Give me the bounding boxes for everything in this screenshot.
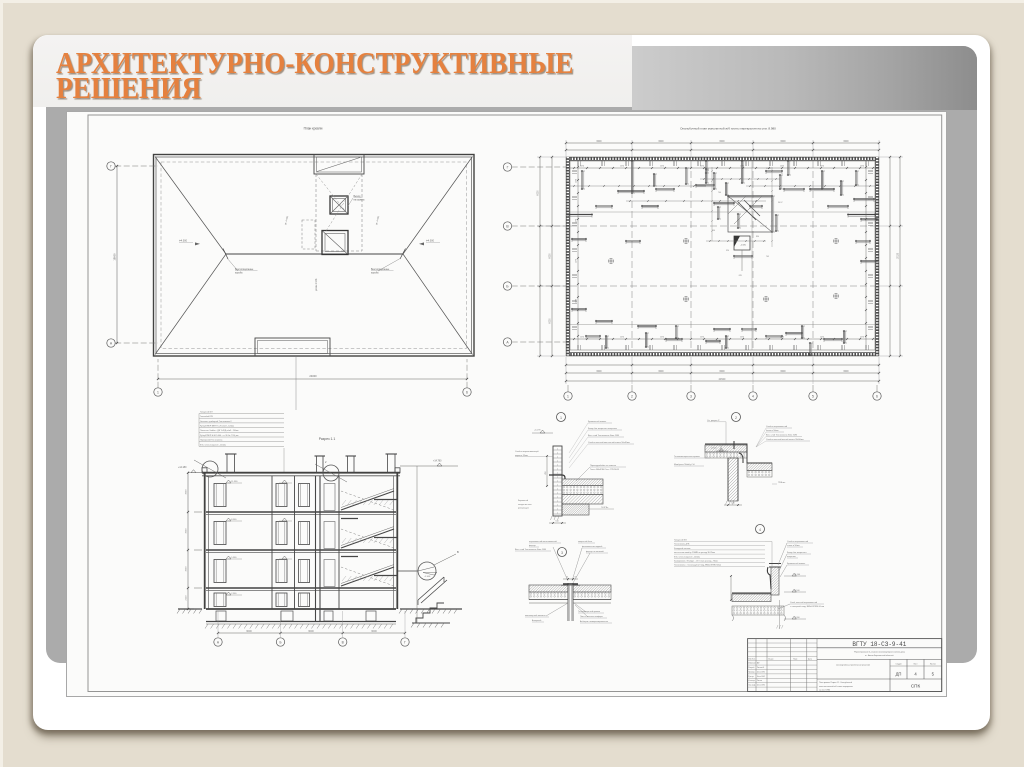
svg-text:АФ: АФ (757, 662, 760, 665)
svg-text:План кровли. Разрез 1.1. Опалу: План кровли. Разрез 1.1. Опалубочный (819, 681, 852, 684)
svg-text:А: А (217, 641, 220, 645)
svg-text:Зав.каф.: Зав.каф. (748, 684, 756, 687)
svg-text:6: 6 (876, 395, 878, 399)
svg-text:Рук.пр.: Рук.пр. (748, 676, 754, 678)
svg-text:1570: 1570 (660, 337, 664, 339)
svg-text:6000: 6000 (246, 630, 252, 633)
svg-text:450: 450 (545, 470, 547, 474)
svg-text:Теплозащитный кромка: Теплозащитный кромка (578, 610, 601, 613)
svg-text:Холодный натолок: Холодный натолок (674, 547, 691, 550)
svg-text:6000: 6000 (843, 371, 849, 373)
svg-text:швеллерный замыкал: швеллерный замыкал (525, 614, 546, 617)
svg-text:705: 705 (766, 256, 769, 258)
svg-text:№ док.: № док. (768, 657, 774, 660)
svg-text:2120: 2120 (186, 595, 188, 601)
svg-text:6000: 6000 (780, 371, 786, 373)
svg-text:Слой из выравнивающей: Слой из выравнивающей (515, 450, 539, 453)
svg-text:Лисов: Лисов (757, 680, 762, 682)
svg-text:1570: 1570 (780, 166, 784, 168)
svg-text:3000: 3000 (186, 528, 188, 534)
svg-text:ук. i=4%: ук. i=4% (284, 215, 289, 225)
svg-text:на кровлю: на кровлю (354, 199, 365, 201)
svg-text:А: А (110, 342, 113, 346)
svg-text:короба: короба (371, 273, 379, 275)
svg-text:3: 3 (690, 395, 692, 399)
svg-text:Опалубочный план монолитной ж/: Опалубочный план монолитной ж/б плиты пе… (680, 127, 776, 131)
svg-text:Чесн.В.Ю: Чесн.В.Ю (757, 676, 765, 678)
svg-text:РуберПЛЮР Н-30 9.000 - ст. 30: РуберПЛЮР Н-30 9.000 - ст. 30 Эк. ТОЦ мм (200, 435, 239, 437)
svg-text:Анкерный: Анкерный (532, 619, 541, 622)
svg-text:План кровли: План кровли (304, 127, 323, 131)
svg-text:4: 4 (759, 528, 761, 532)
svg-text:1570: 1570 (660, 166, 664, 168)
svg-text:5: 5 (932, 672, 935, 677)
svg-text:Слой из жесткой мин.ватной пли: Слой из жесткой мин.ватной плиты 50х40мм (588, 441, 630, 444)
svg-text:уклон i=1%: уклон i=1% (315, 278, 318, 291)
svg-text:Чесн.В.Ю: Чесн.В.Ю (757, 671, 765, 673)
svg-text:4: 4 (752, 395, 754, 399)
svg-text:+14.78: +14.78 (534, 430, 541, 432)
svg-text:+2.980: +2.980 (230, 593, 237, 595)
svg-text:50: 50 (566, 577, 568, 579)
svg-text:6000: 6000 (596, 141, 602, 143)
svg-text:+14.780: +14.780 (433, 461, 442, 463)
svg-text:резервация: резервация (518, 507, 529, 509)
svg-text:А: А (506, 341, 509, 345)
svg-text:Техэл 5МхФЛ60 Гост СП520-83: Техэл 5МхФЛ60 Гост СП520-83 (590, 468, 620, 471)
svg-text:i=4.000: i=4.000 (179, 240, 188, 243)
svg-text:5: 5 (812, 395, 814, 399)
svg-text:СПК: СПК (911, 684, 921, 689)
svg-text:Кровельный ковель: Кровельный ковель (787, 562, 805, 565)
svg-text:-1.200: -1.200 (794, 617, 801, 619)
svg-text:Ж.Б. плита покрытия - 200мм: Ж.Б. плита покрытия - 200мм (674, 556, 701, 558)
svg-text:фальшив зам подвый: фальшив зам подвый (582, 545, 602, 548)
svg-text:-0.150: -0.150 (711, 448, 716, 450)
svg-text:Вел. слой Технониколь Фикс 30М: Вел. слой Технониколь Фикс 30М (766, 434, 797, 437)
svg-text:В: В (342, 641, 344, 645)
svg-text:Изменил: Изменил (748, 663, 755, 665)
svg-text:320: 320 (726, 250, 729, 252)
svg-text:Подп: Подп (793, 658, 797, 660)
svg-text:+3.100: +3.100 (794, 574, 801, 576)
svg-text:Лист: Лист (914, 664, 918, 666)
svg-text:Вел. слой Технониколь Фикс 30М: Вел. слой Технониколь Фикс 30М (515, 548, 546, 551)
svg-text:4: 4 (914, 672, 917, 677)
svg-text:1570: 1570 (576, 219, 578, 223)
svg-text:РуберПЛЮР ВЕНТ Т=70 кг/м3 - 12: РуберПЛЮР ВЕНТ Т=70 кг/м3 - 120мм (200, 426, 235, 428)
svg-text:2: 2 (735, 416, 737, 420)
svg-text:Изм Кол: Изм Кол (748, 658, 755, 660)
svg-text:34.97: 34.97 (778, 202, 783, 204)
svg-text:Листов: Листов (930, 664, 936, 666)
svg-text:3000: 3000 (186, 489, 188, 495)
svg-text:1570: 1570 (576, 179, 578, 183)
svg-text:Экопласт приборной Технониколь: Экопласт приборной Технониколь-У (200, 420, 233, 423)
svg-text:6000: 6000 (719, 371, 725, 373)
svg-text:литстен-листовой р-2 ММВ по ра: литстен-листовой р-2 ММВ по раскод 36-76… (674, 551, 716, 554)
svg-text:1570: 1570 (740, 166, 744, 168)
svg-text:1570: 1570 (860, 337, 864, 339)
svg-text:с толщиной твид, ВМЫ-ЖЛЯБ 60 м: с толщиной твид, ВМЫ-ЖЛЯБ 60 мм (790, 605, 825, 608)
svg-text:Чесн.В.Ю: Чесн.В.Ю (757, 685, 765, 687)
svg-text:Технониколь с технозащитой тви: Технониколь с технозащитой твид, ВМЫ-ЖЛЯ… (674, 564, 722, 567)
svg-text:50: 50 (575, 577, 577, 579)
svg-text:Н.контр.: Н.контр. (748, 680, 755, 682)
svg-text:«Проектирование 4-этажного мно: «Проектирование 4-этажного многоквартирн… (854, 652, 905, 654)
svg-text:Лисов А.: Лисов А. (757, 666, 765, 669)
svg-text:1570: 1570 (620, 166, 624, 168)
svg-text:6000: 6000 (658, 141, 664, 143)
svg-text:Ж.Б. плита покрытия - 220мм: Ж.Б. плита покрытия - 220мм (200, 444, 227, 446)
svg-text:6000: 6000 (780, 141, 786, 143)
svg-text:В: В (506, 225, 509, 229)
svg-text:6000: 6000 (538, 190, 540, 196)
svg-text:Замокроволь 'Эльбрус' - Об' Ст: Замокроволь 'Эльбрус' - Об' Сталь расход… (674, 561, 718, 563)
svg-text:3: 3 (561, 551, 563, 555)
svg-text:Стадия: Стадия (895, 664, 901, 666)
svg-text:на отм. 8.980: на отм. 8.980 (819, 689, 830, 691)
svg-text:1570: 1570 (700, 337, 704, 339)
svg-text:Слой из жесткой ватной плиты 3: Слой из жесткой ватной плиты 30х50мм (766, 438, 804, 441)
svg-text:Парогидробойка на отметке: Парогидробойка на отметке (590, 464, 617, 467)
svg-text:1: 1 (567, 395, 569, 399)
svg-text:Технониколь ДПК: Технониколь ДПК (674, 544, 690, 546)
svg-text:Пленстил. Чайбег - ДВ Т=35Д кг: Пленстил. Чайбег - ДВ Т=35Д кг/м3 - 110м… (200, 429, 239, 432)
svg-text:1570: 1570 (580, 337, 584, 339)
svg-text:конструктивно-строительные реш: конструктивно-строительные решения (836, 664, 870, 666)
svg-text:в г. Нижне-Карталинской област: в г. Нижне-Карталинской области» (865, 654, 894, 657)
svg-text:1: 1 (560, 416, 562, 420)
svg-text:-1.100: -1.100 (424, 576, 431, 578)
svg-text:Слой из оцинкованной: Слой из оцинкованной (766, 425, 787, 428)
svg-text:фартук по полевой: фартук по полевой (586, 550, 604, 553)
svg-text:1570: 1570 (576, 259, 578, 263)
svg-text:18120: 18120 (898, 252, 900, 259)
svg-text:1570: 1570 (860, 166, 864, 168)
svg-text:оцинкованной металлической: оцинкованной металлической (529, 540, 557, 543)
svg-text:Листы плоского шифера: Листы плоского шифера (580, 615, 604, 618)
svg-text:18000: 18000 (112, 253, 116, 261)
svg-text:Г: Г (507, 166, 509, 170)
svg-text:Б: Б (506, 285, 509, 289)
svg-text:Асбоцем. позиционированных: Асбоцем. позиционированных (580, 620, 608, 623)
svg-text:Кровельный ковель: Кровельный ковель (588, 420, 606, 423)
svg-text:П-ОГВа: П-ОГВа (601, 507, 609, 509)
svg-text:ВГТУ 18-СЗ-9-41: ВГТУ 18-СЗ-9-41 (852, 641, 906, 648)
svg-text:1570: 1570 (820, 337, 824, 339)
svg-text:6000: 6000 (596, 371, 602, 373)
svg-text:Провер.: Провер. (748, 671, 755, 673)
svg-text:Разраб.: Разраб. (748, 667, 755, 669)
svg-text:Б: Б (279, 641, 281, 645)
svg-text:кладки из газо-: кладки из газо- (518, 504, 532, 506)
svg-text:2: 2 (631, 395, 633, 399)
svg-text:6000: 6000 (550, 318, 552, 324)
svg-text:6000: 6000 (371, 630, 377, 633)
svg-text:+11.380: +11.380 (230, 481, 238, 483)
svg-text:Кирпичной: Кирпичной (518, 499, 528, 502)
svg-text:1: 1 (157, 391, 159, 395)
svg-text:-0.100: -0.100 (794, 590, 801, 592)
svg-text:Г: Г (110, 165, 112, 169)
svg-text:ук. i=4%: ук. i=4% (375, 215, 380, 225)
svg-text:фартук: фартук (529, 544, 536, 547)
svg-text:6000: 6000 (658, 371, 664, 373)
svg-text:+8.980: +8.980 (230, 519, 237, 521)
svg-text:24000: 24000 (309, 374, 317, 378)
svg-text:Слой, жесткой оцинкованной: Слой, жесткой оцинкованной (790, 601, 817, 604)
svg-text:6000: 6000 (308, 630, 314, 633)
svg-text:i=4.000: i=4.000 (426, 240, 435, 243)
svg-text:+5.980: +5.980 (230, 557, 237, 559)
svg-text:+14.180: +14.180 (178, 467, 187, 469)
svg-text:890: 890 (756, 236, 759, 238)
svg-text:6000: 6000 (719, 141, 725, 143)
svg-text:6000: 6000 (550, 253, 552, 259)
svg-text:Дата: Дата (808, 658, 812, 660)
svg-text:Слой из оцинкованной: Слой из оцинкованной (787, 540, 808, 543)
svg-text:Г: Г (404, 641, 406, 645)
svg-text:2: 2 (325, 460, 327, 464)
svg-text:1570: 1570 (620, 337, 624, 339)
svg-text:510: 510 (555, 521, 558, 523)
svg-text:-745: -745 (738, 275, 742, 277)
svg-text:план монолитной ж/б плиты пере: план монолитной ж/б плиты перекрытия (819, 685, 853, 688)
svg-text:-2.580: -2.580 (740, 245, 747, 247)
svg-text:Вел. слой Технониколь Фикс 30М: Вел. слой Технониколь Фикс 30М (588, 434, 619, 437)
svg-text:короба: короба (235, 273, 243, 275)
svg-text:Толщиной 3КЗ: Толщиной 3КЗ (674, 539, 688, 542)
svg-text:6000: 6000 (843, 141, 849, 143)
svg-text:1570: 1570 (740, 337, 744, 339)
svg-text:3000: 3000 (186, 566, 188, 572)
svg-text:В: В (457, 550, 459, 554)
svg-text:700: 700 (718, 192, 721, 194)
svg-text:ДП: ДП (896, 672, 902, 677)
svg-text:Галькобой IPВ: Галькобой IPВ (200, 415, 213, 418)
svg-text:ПУВ-мя: ПУВ-мя (778, 482, 785, 484)
svg-text:Толщиной 30Т: Толщиной 30Т (200, 410, 214, 413)
svg-text:24540: 24540 (719, 378, 726, 381)
svg-text:Перекрытий Технониколь: Перекрытий Технониколь (200, 439, 222, 442)
svg-text:защитный болт: защитный болт (578, 540, 592, 543)
svg-text:Разрез 1.1: Разрез 1.1 (319, 437, 336, 441)
svg-text:Мембрана 'Майбут' 5б: Мембрана 'Майбут' 5б (674, 463, 696, 466)
svg-text:6: 6 (466, 391, 468, 395)
